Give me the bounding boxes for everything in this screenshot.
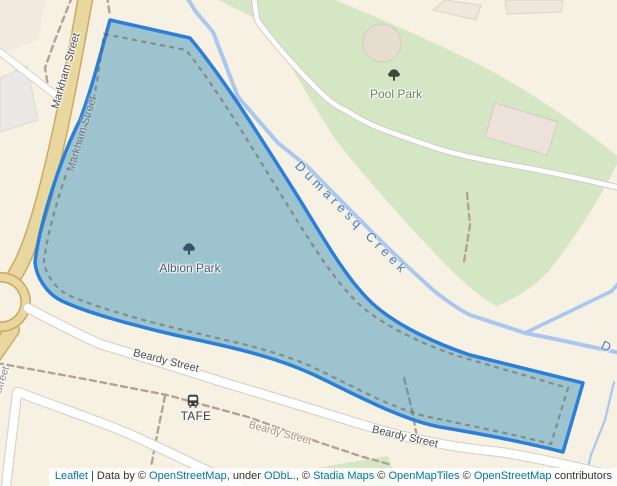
- attribution-text: , ©: [296, 470, 313, 482]
- attribution-link-odbl[interactable]: ODbL.: [264, 470, 296, 482]
- leaflet-map[interactable]: Pool Park Albion Park Dumaresq Creek D M…: [0, 0, 617, 486]
- attribution-text: contributors: [551, 470, 612, 482]
- attribution-text: ©: [460, 470, 474, 482]
- map-tile-layer: [0, 0, 617, 486]
- attribution-link-leaflet[interactable]: Leaflet: [55, 470, 88, 482]
- attribution-text: , under: [227, 470, 264, 482]
- attribution-link-stadia-maps[interactable]: Stadia Maps: [313, 470, 374, 482]
- attribution-link-openstreetmap[interactable]: OpenStreetMap: [149, 470, 227, 482]
- attribution-link-openstreetmap-2[interactable]: OpenStreetMap: [474, 470, 552, 482]
- pool-area: [363, 24, 401, 62]
- attribution-bar: Leaflet | Data by © OpenStreetMap, under…: [49, 468, 617, 486]
- attribution-text: ©: [374, 470, 388, 482]
- building: [505, 0, 563, 14]
- attribution-link-openmaptiles[interactable]: OpenMapTiles: [388, 470, 459, 482]
- attribution-text: | Data by ©: [88, 470, 149, 482]
